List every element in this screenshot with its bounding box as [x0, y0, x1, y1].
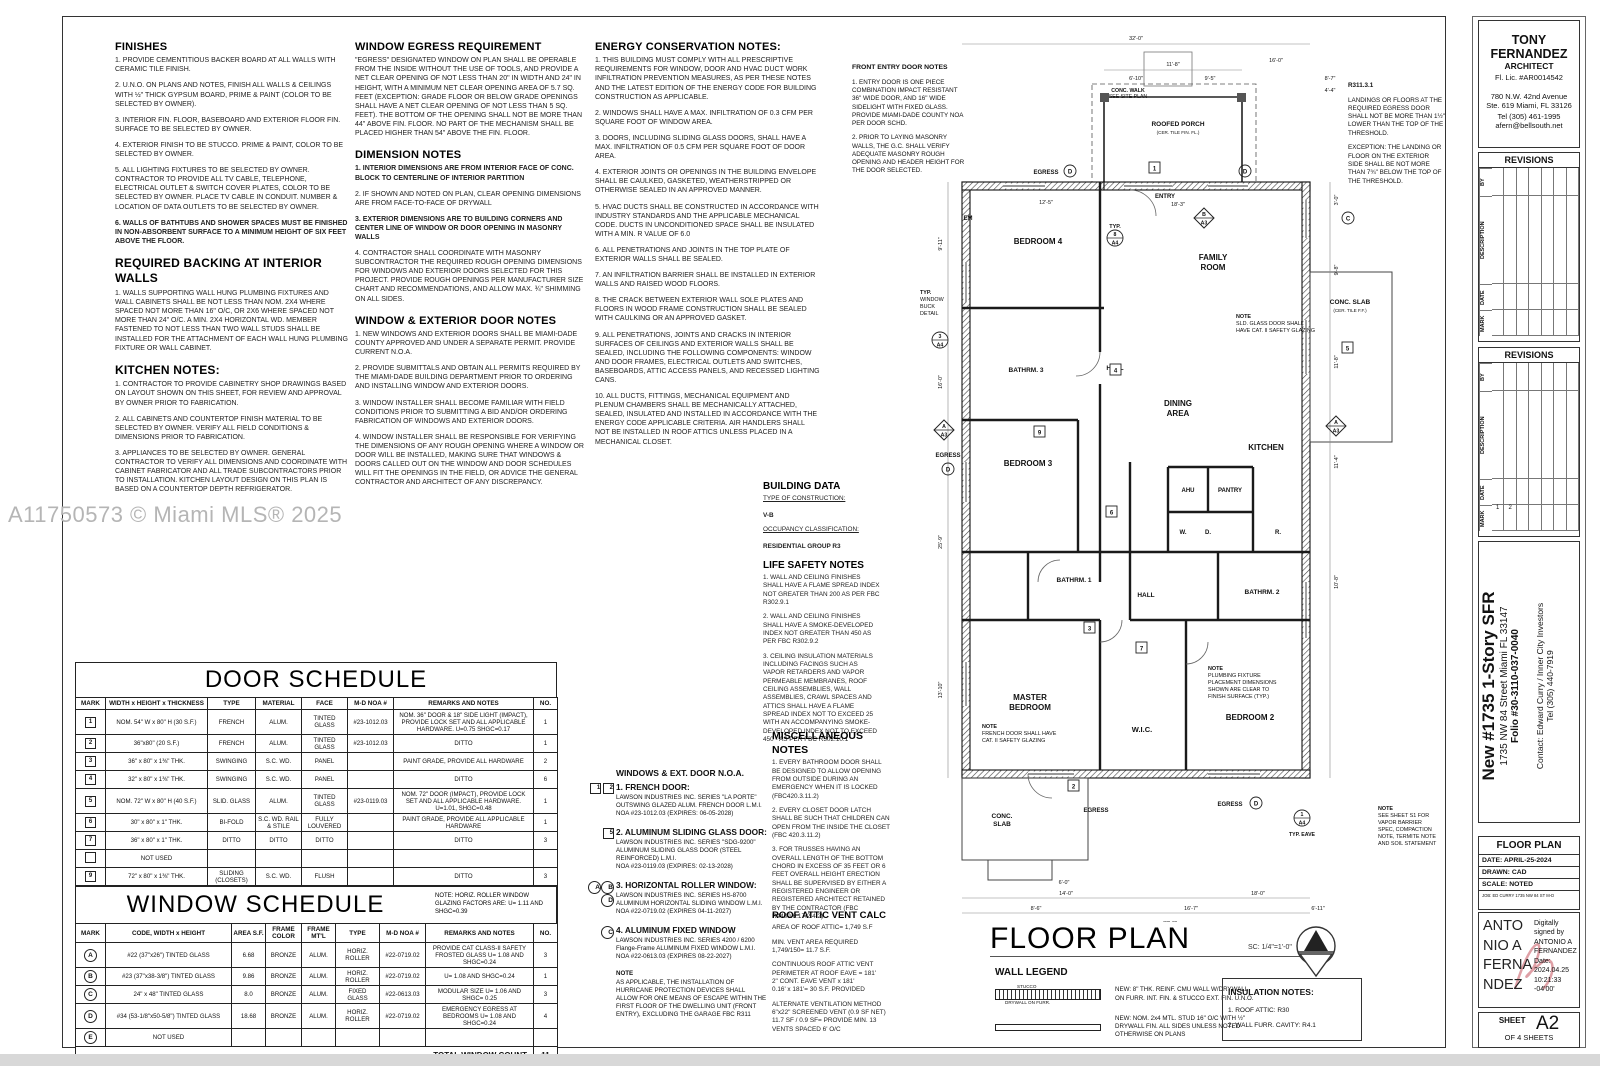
- door-schedule-title: DOOR SCHEDULE: [75, 662, 557, 697]
- table-cell: DITTO: [394, 832, 534, 850]
- table-cell: BRONZE: [266, 968, 302, 986]
- table-cell: HORIZ. ROLLER: [336, 1004, 380, 1029]
- revision-cell: [1542, 363, 1554, 391]
- backing-title: REQUIRED BACKING AT INTERIOR WALLS: [115, 256, 348, 287]
- architect-address2: Ste. 619 Miami, FL 33126: [1479, 101, 1579, 110]
- svg-text:8'-7": 8'-7": [1325, 76, 1336, 82]
- revisions-date-label: DATE: [1479, 479, 1492, 505]
- table-cell: 6: [534, 771, 558, 789]
- revision-cell: [1554, 196, 1566, 284]
- project-folio: Folio #30-3110-037-0040: [1510, 546, 1521, 823]
- table-cell: 6: [76, 814, 106, 832]
- note-paragraph: 1. NEW WINDOWS AND EXTERIOR DOORS SHALL …: [355, 330, 588, 357]
- notes-column-1: FINISHES 1. PROVIDE CEMENTITIOUS BACKER …: [115, 30, 348, 501]
- revisions-row-description: DESCRIPTION: [1479, 391, 1579, 479]
- revisions-date-label: DATE: [1479, 284, 1492, 310]
- noa-entry-roller: ABD 3. HORIZONTAL ROLLER WINDOW: LAWSON …: [590, 880, 768, 916]
- drawing-sheet: A11750573 © Miami MLS® 2025 FINISHES 1. …: [0, 0, 1600, 1054]
- energy-notes-items: 1. THIS BUILDING MUST COMPLY WITH ALL PR…: [595, 56, 820, 446]
- table-cell: U= 1.08 AND SHGC=0.24: [426, 968, 534, 986]
- revision-cell: [1542, 391, 1554, 479]
- revision-cell: [1529, 505, 1541, 531]
- window-schedule: WINDOW SCHEDULE NOTE: HORIZ. ROLLER WIND…: [75, 886, 557, 1054]
- revisions-row-description: DESCRIPTION: [1479, 196, 1579, 284]
- svg-text:18'-3": 18'-3": [1171, 202, 1185, 208]
- table-cell: BRONZE: [266, 943, 302, 968]
- sheet-label: SHEET: [1499, 1016, 1526, 1025]
- note-paragraph: 4. CONTRACTOR SHALL COORDINATE WITH MASO…: [355, 249, 588, 304]
- occupancy-value: RESIDENTIAL GROUP R3: [763, 543, 841, 550]
- window-schedule-table: MARKCODE, WIDTH x HEIGHTAREA S.F.FRAME C…: [75, 923, 558, 1054]
- table-cell: DITTO: [302, 832, 348, 850]
- note-paragraph: 2. PROVIDE SUBMITTALS AND OBTAIN ALL PER…: [355, 364, 588, 391]
- vent-calc-title: ROOF ATTIC VENT CALC: [772, 910, 890, 922]
- revisions-row-by: BY: [1479, 363, 1579, 391]
- svg-text:10'-8": 10'-8": [1334, 575, 1340, 589]
- svg-text:NOTE: NOTE: [982, 724, 997, 730]
- table-cell: #22 (37"x26") TINTED GLASS: [106, 943, 232, 968]
- noa-entry-fixed: C 4. ALUMINUM FIXED WINDOW LAWSON INDUST…: [590, 925, 768, 961]
- svg-text:25'-9": 25'-9": [938, 535, 944, 549]
- insulation-notes: INSULATION NOTES: 1. ROOF ATTIC: R302. W…: [1222, 978, 1362, 1041]
- svg-text:CONC.: CONC.: [992, 813, 1013, 820]
- insulation-notes-items: 1. ROOF ATTIC: R302. WALL FURR. CAVITY: …: [1228, 1007, 1356, 1031]
- revision-cell: [1504, 479, 1516, 505]
- note-paragraph: 4. EXTERIOR FINISH TO BE STUCCO. PRIME &…: [115, 141, 348, 159]
- mls-watermark: A11750573 © Miami MLS® 2025: [8, 502, 342, 528]
- table-cell: ALUM.: [302, 986, 336, 1004]
- insulation-notes-title: INSULATION NOTES:: [1228, 987, 1314, 997]
- revisions-description-label: DESCRIPTION: [1479, 196, 1492, 284]
- table-cell: SLIDING (CLOSETS): [208, 868, 256, 886]
- svg-text:16'-0": 16'-0": [1269, 58, 1283, 64]
- svg-text:EGRESS: EGRESS: [1083, 808, 1108, 814]
- table-cell: 1: [534, 735, 558, 753]
- svg-text:AND SOIL STATEMENT: AND SOIL STATEMENT: [1378, 841, 1437, 847]
- table-cell: 9.86: [232, 968, 266, 986]
- svg-text:DETAIL: DETAIL: [920, 311, 938, 317]
- table-cell: 36"x80" (20 S.F.): [106, 735, 208, 753]
- svg-text:6'-0": 6'-0": [1059, 880, 1070, 886]
- column-header: NO.: [534, 698, 558, 710]
- table-cell: #23 (37"x38-3/8") TINTED GLASS: [106, 968, 232, 986]
- table-cell: PANEL: [302, 753, 348, 771]
- table-cell: NOM. 54" W x 80" H (30 S.F.): [106, 710, 208, 735]
- r311-note-items: LANDINGS OR FLOORS AT THE REQUIRED EGRES…: [1348, 97, 1445, 186]
- revision-cell: [1517, 505, 1529, 531]
- svg-text:SLAB: SLAB: [993, 821, 1011, 828]
- table-row: 1NOM. 54" W x 80" H (30 S.F.)FRENCHALUM.…: [76, 710, 558, 735]
- table-cell: ALUM.: [256, 710, 302, 735]
- note-paragraph: 2. WINDOWS SHALL HAVE A MAX. INFILTRATIO…: [595, 109, 820, 127]
- sheet-info-box: FLOOR PLAN DATE: APRIL-25-2024 DRAWN: CA…: [1478, 836, 1580, 910]
- revision-cell: [1542, 479, 1554, 505]
- table-cell: SWINGING: [208, 753, 256, 771]
- table-cell: 1: [76, 710, 106, 735]
- dimension-notes-items: 1. INTERIOR DIMENSIONS ARE FROM INTERIOR…: [355, 164, 588, 303]
- table-cell: [208, 850, 256, 868]
- revision-cell: [1529, 168, 1541, 196]
- table-row: 630" x 80" x 1" THK.BI-FOLDS.C. WD. RAIL…: [76, 814, 558, 832]
- revision-cell: [1567, 284, 1579, 310]
- svg-text:D: D: [1068, 170, 1073, 176]
- revision-cell: [1492, 310, 1504, 336]
- legend-drywall-label: DRYWALL ON FURR.: [1005, 1000, 1115, 1005]
- column-header: TYPE: [336, 924, 380, 943]
- revisions-box-1: REVISIONS BY DESCRIPTION DATE MARK: [1478, 152, 1580, 342]
- revisions-row-mark: MARK: [1479, 310, 1579, 336]
- windoor-notes-items: 1. NEW WINDOWS AND EXTERIOR DOORS SHALL …: [355, 330, 588, 487]
- table-cell: TINTED GLASS: [302, 710, 348, 735]
- revisions-mark-label: MARK: [1479, 505, 1492, 531]
- window-schedule-title: WINDOW SCHEDULE: [76, 891, 435, 919]
- notes-column-2: WINDOW EGRESS REQUIREMENT "EGRESS" DESIG…: [355, 30, 588, 494]
- table-cell: BRONZE: [266, 1004, 302, 1029]
- svg-text:A4: A4: [1299, 821, 1306, 827]
- table-row: 336" x 80" x 1⅜" THK.SWINGINGS.C. WD.PAN…: [76, 753, 558, 771]
- revision-cell: [1504, 284, 1516, 310]
- svg-text:4'-4": 4'-4": [1325, 88, 1336, 94]
- svg-text:EGRESS: EGRESS: [1033, 170, 1058, 176]
- egress-markers: EGRESS D D EGRESS D EGRESS EGRESS D C: [935, 165, 1354, 814]
- svg-text:ROOFED PORCH: ROOFED PORCH: [1151, 121, 1204, 128]
- dimension-labels: 32'-0" 11'-8" 6'-10" 9'-5" 16'-0" 8'-7" …: [938, 36, 1340, 922]
- table-cell: 8.0: [232, 986, 266, 1004]
- note-paragraph: 1. WALL AND CEILING FINISHES SHALL HAVE …: [763, 574, 881, 607]
- svg-text:D: D: [1254, 802, 1259, 808]
- table-cell: [426, 1029, 534, 1047]
- occupancy-label: OCCUPANCY CLASSIFICATION:: [763, 526, 859, 533]
- table-cell: [232, 1029, 266, 1047]
- table-cell: 3: [534, 986, 558, 1004]
- svg-text:NOTE: NOTE: [1378, 806, 1393, 812]
- project-phone: Tel (305) 440-7919: [1545, 546, 1555, 823]
- revisions-row-mark: MARK 1 2: [1479, 505, 1579, 531]
- note-paragraph: 4. EXTERIOR JOINTS OR OPENINGS IN THE BU…: [595, 168, 820, 195]
- revision-cell: [1517, 284, 1529, 310]
- table-cell: ALUM.: [256, 789, 302, 814]
- column-header: CODE, WIDTH x HEIGHT: [106, 924, 232, 943]
- table-cell: TINTED GLASS: [302, 735, 348, 753]
- table-cell: 30" x 80" x 1" THK.: [106, 814, 208, 832]
- table-cell: E: [76, 1029, 106, 1047]
- table-cell: NOT USED: [106, 850, 208, 868]
- sheet-date: DATE: APRIL-25-2024: [1479, 855, 1579, 867]
- table-cell: MODULAR SIZE U= 1.06 AND SHGC= 0.25: [426, 986, 534, 1004]
- svg-text:12'-5": 12'-5": [1039, 200, 1053, 206]
- window-mark-A: A: [588, 881, 601, 894]
- revision-cell: [1554, 310, 1566, 336]
- revision-cell: [1529, 363, 1541, 391]
- svg-text:16'-0": 16'-0": [938, 375, 944, 389]
- svg-text:AREA: AREA: [1167, 409, 1190, 418]
- revisions-header: REVISIONS: [1479, 348, 1579, 363]
- plan-scale: SC: 1/4"=1'-0": [1248, 944, 1292, 951]
- revision-cell: [1542, 505, 1554, 531]
- revisions-by-label: BY: [1479, 363, 1492, 391]
- legend-cmu-graphic: STUCCO DRYWALL ON FURR.: [995, 984, 1115, 1005]
- table-row: B#23 (37"x38-3/8") TINTED GLASS9.86BRONZ…: [76, 968, 558, 986]
- project-contact: Contact: Edward Curry / Inner City Inves…: [1535, 546, 1545, 823]
- table-cell: PROVIDE CAT CLASS-II SAFETY FROSTED GLAS…: [426, 943, 534, 968]
- table-cell: [302, 850, 348, 868]
- conc-walk-outline: [1144, 52, 1192, 86]
- svg-text:18'-0": 18'-0": [1251, 891, 1265, 897]
- plan-caption: FLOOR PLAN: [990, 922, 1190, 956]
- table-cell: 36" x 80" x 1⅜" THK.: [106, 753, 208, 771]
- note-paragraph: 1. WALLS SUPPORTING WALL HUNG PLUMBING F…: [115, 289, 348, 353]
- svg-text:EGRESS: EGRESS: [1217, 802, 1242, 808]
- note-paragraph: EXCEPTION: THE LANDING OR FLOOR ON THE E…: [1348, 144, 1445, 185]
- sheet-job: JOB: ED CURRY 1735 NW 84 ST M-D: [1479, 891, 1579, 900]
- svg-text:TYP.: TYP.: [1109, 224, 1121, 230]
- table-cell: 3: [534, 832, 558, 850]
- svg-text:3: 3: [939, 334, 942, 340]
- building-data-block: BUILDING DATA TYPE OF CONSTRUCTION: V-B …: [763, 472, 881, 750]
- revision-cell: [1517, 391, 1529, 479]
- note-paragraph: ALTERNATE VENTILATION METHOD 6"x22" SCRE…: [772, 1001, 890, 1034]
- backing-items: 1. WALLS SUPPORTING WALL HUNG PLUMBING F…: [115, 289, 348, 353]
- table-cell: [348, 814, 394, 832]
- revision-cell: [1492, 391, 1504, 479]
- sheet-number-box: SHEET A2 OF 4 SHEETS: [1478, 1012, 1580, 1048]
- column-header: REMARKS AND NOTES: [426, 924, 534, 943]
- revision-cell: [1492, 363, 1504, 391]
- noa-note-title: NOTE: [616, 970, 633, 977]
- svg-text:SHOWN ARE CLEAR TO: SHOWN ARE CLEAR TO: [1208, 687, 1269, 693]
- svg-text:B: B: [1202, 212, 1206, 218]
- north-arrow-icon: [1290, 924, 1342, 980]
- table-cell: SLID. GLASS: [208, 789, 256, 814]
- table-cell: #22-0613.03: [380, 986, 426, 1004]
- table-cell: 2: [534, 753, 558, 771]
- table-cell: DITTO: [256, 832, 302, 850]
- column-header: TYPE: [208, 698, 256, 710]
- table-cell: [348, 832, 394, 850]
- table-cell: NOM. 72" W x 80" H (40 S.F.): [106, 789, 208, 814]
- window-mark-D: D: [601, 894, 614, 907]
- table-cell: FLUSH: [302, 868, 348, 886]
- svg-text:A3: A3: [1201, 221, 1208, 227]
- noa-entry-title: 4. ALUMINUM FIXED WINDOW: [616, 925, 768, 936]
- svg-text:HAVE CAT. II SAFETY GLAZING: HAVE CAT. II SAFETY GLAZING: [1236, 328, 1315, 334]
- table-cell: 18.68: [232, 1004, 266, 1029]
- porch-column: [1237, 93, 1246, 102]
- plan-notes: NOTE SLD. GLASS DOOR SHALL HAVE CAT. II …: [920, 290, 1437, 847]
- svg-text:EM: EM: [964, 216, 973, 222]
- table-cell: 72" x 80" x 1⅜" THK.: [106, 868, 208, 886]
- svg-text:SLD. GLASS DOOR SHALL: SLD. GLASS DOOR SHALL: [1236, 321, 1304, 327]
- revisions-header: REVISIONS: [1479, 153, 1579, 168]
- noa-entry-sgd: 5 2. ALUMINUM SLIDING GLASS DOOR: LAWSON…: [590, 827, 768, 871]
- table-cell: HORIZ. ROLLER: [336, 943, 380, 968]
- note-paragraph: "EGRESS" DESIGNATED WINDOW ON PLAN SHALL…: [355, 56, 588, 138]
- svg-text:KITCHEN: KITCHEN: [1248, 443, 1284, 452]
- svg-text:SEE SITE PLAN: SEE SITE PLAN: [1109, 94, 1148, 100]
- svg-text:D: D: [1243, 170, 1248, 176]
- revision-cell: [1542, 310, 1554, 336]
- svg-text:EGRESS: EGRESS: [935, 453, 960, 459]
- revision-mark-1: 1: [1492, 505, 1504, 531]
- architect-license: Fl. Lic. #AR0014542: [1479, 73, 1579, 82]
- column-header: AREA S.F.: [232, 924, 266, 943]
- svg-text:BATHRM. 2: BATHRM. 2: [1245, 589, 1280, 596]
- table-cell: 7: [76, 832, 106, 850]
- svg-text:A3: A3: [1333, 429, 1340, 435]
- svg-text:TYP.: TYP.: [920, 290, 932, 296]
- vent-calc-block: ROOF ATTIC VENT CALC AREA OF ROOF ATTIC=…: [772, 902, 890, 1040]
- svg-text:BEDROOM: BEDROOM: [1009, 703, 1051, 712]
- table-cell: 4: [76, 771, 106, 789]
- table-cell: 1: [534, 968, 558, 986]
- note-paragraph: AREA OF ROOF ATTIC= 1,749 S.F: [772, 924, 890, 932]
- column-header: FRAME COLOR: [266, 924, 302, 943]
- architect-email: afern@bellsouth.net: [1479, 121, 1579, 130]
- svg-text:ENTRY: ENTRY: [1155, 194, 1175, 200]
- revision-cell: [1542, 284, 1554, 310]
- noa-entry-title: 1. FRENCH DOOR:: [616, 782, 768, 793]
- table-cell: #34 (53-1/8"x50-5/8") TINTED GLASS: [106, 1004, 232, 1029]
- table-cell: ALUM.: [256, 735, 302, 753]
- revision-cell: [1529, 310, 1541, 336]
- note-paragraph: 5. HVAC DUCTS SHALL BE CONSTRUCTED IN AC…: [595, 203, 820, 239]
- column-header: MARK: [76, 924, 106, 943]
- table-cell: [348, 868, 394, 886]
- noa-title: WINDOWS & EXT. DOOR N.O.A.: [616, 768, 768, 779]
- svg-text:CAT. II SAFETY GLAZING: CAT. II SAFETY GLAZING: [982, 738, 1045, 744]
- sheet-of: OF 4 SHEETS: [1479, 1033, 1579, 1042]
- svg-text:R.: R.: [1275, 530, 1281, 536]
- table-cell: 4: [534, 1004, 558, 1029]
- table-cell: ALUM.: [302, 943, 336, 968]
- note-paragraph: 8. THE CRACK BETWEEN EXTERIOR WALL SOLE …: [595, 296, 820, 323]
- svg-text:14'-0": 14'-0": [1059, 891, 1073, 897]
- column-header: MATERIAL: [256, 698, 302, 710]
- project-title: New #1735 1-Story SFR: [1479, 546, 1499, 823]
- svg-text:NOTE: NOTE: [1208, 666, 1223, 672]
- revision-cell: [1504, 391, 1516, 479]
- svg-text:BUCK: BUCK: [920, 304, 935, 310]
- table-cell: FULLY LOUVERED: [302, 814, 348, 832]
- svg-text:11'-8": 11'-8": [1334, 355, 1340, 368]
- project-box: New #1735 1-Story SFR 1735 NW 84 Street …: [1478, 541, 1580, 823]
- table-cell: 3: [76, 753, 106, 771]
- table-row: D#34 (53-1/8"x50-5/8") TINTED GLASS18.68…: [76, 1004, 558, 1029]
- revision-cell: [1529, 479, 1541, 505]
- table-cell: C: [76, 986, 106, 1004]
- note-paragraph: 7. AN INFILTRATION BARRIER SHALL BE INST…: [595, 271, 820, 289]
- table-cell: S.C. WD.: [256, 771, 302, 789]
- table-cell: NOT USED: [106, 1029, 232, 1047]
- svg-text:BEDROOM 2: BEDROOM 2: [1226, 713, 1275, 722]
- table-cell: [76, 850, 106, 868]
- svg-text:1: 1: [1301, 812, 1304, 818]
- finishes-items: 1. PROVIDE CEMENTITIOUS BACKER BOARD AT …: [115, 56, 348, 246]
- svg-text:W.: W.: [1180, 530, 1187, 536]
- architect-name: TONY FERNANDEZ: [1479, 33, 1579, 61]
- svg-text:FAMILY: FAMILY: [1199, 253, 1228, 262]
- noa-entry-lines: LAWSON INDUSTRIES INC. SERIES "LA PORTE"…: [616, 794, 768, 818]
- table-row: 236"x80" (20 S.F.)FRENCHALUM.TINTED GLAS…: [76, 735, 558, 753]
- revision-cell: [1567, 310, 1579, 336]
- svg-text:A: A: [942, 424, 946, 430]
- table-cell: 1: [534, 814, 558, 832]
- svg-text:NOTE, TERMITE NOTE: NOTE, TERMITE NOTE: [1378, 834, 1436, 840]
- revision-mark-2: 2: [1504, 505, 1516, 531]
- note-paragraph: 1. ROOF ATTIC: R30: [1228, 1007, 1356, 1016]
- table-cell: 1: [534, 789, 558, 814]
- note-paragraph: LANDINGS OR FLOORS AT THE REQUIRED EGRES…: [1348, 97, 1445, 138]
- revision-cell: [1542, 196, 1554, 284]
- kitchen-notes-items: 1. CONTRACTOR TO PROVIDE CABINETRY SHOP …: [115, 380, 348, 494]
- porch-walls: [1104, 97, 1242, 182]
- column-header: M-D NOA #: [348, 698, 394, 710]
- vent-calc-items: AREA OF ROOF ATTIC= 1,749 S.FMIN. VENT A…: [772, 924, 890, 1034]
- column-header: REMARKS AND NOTES: [394, 698, 534, 710]
- table-cell: #23-0119.03: [348, 789, 394, 814]
- svg-text:A4: A4: [1112, 241, 1119, 247]
- revision-cell: [1492, 168, 1504, 196]
- table-cell: 3: [534, 943, 558, 968]
- table-cell: #22-0719.02: [380, 1004, 426, 1029]
- note-paragraph: CONTINUOUS ROOF ATTIC VENT PERIMETER AT …: [772, 961, 890, 994]
- column-header: NO.: [534, 924, 558, 943]
- revision-cell: [1554, 284, 1566, 310]
- revision-cell: [1517, 479, 1529, 505]
- revision-cell: [1554, 168, 1566, 196]
- table-cell: S.C. WD.: [256, 868, 302, 886]
- table-cell: 3: [534, 868, 558, 886]
- svg-text:8'-6": 8'-6": [1031, 906, 1042, 912]
- building-data-title: BUILDING DATA: [763, 480, 881, 493]
- r311-note: R311.3.1 LANDINGS OR FLOORS AT THE REQUI…: [1348, 82, 1445, 192]
- table-row: 432" x 80" x 1⅜" THK.SWINGINGS.C. WD.PAN…: [76, 771, 558, 789]
- table-cell: [256, 850, 302, 868]
- stud-wall-swatch: [995, 1024, 1101, 1031]
- note-paragraph: 1. CONTRACTOR TO PROVIDE CABINETRY SHOP …: [115, 380, 348, 407]
- note-paragraph: 1. PROVIDE CEMENTITIOUS BACKER BOARD AT …: [115, 56, 348, 74]
- finishes-title: FINISHES: [115, 40, 348, 54]
- revision-cell: [1567, 363, 1579, 391]
- svg-text:ROOM: ROOM: [1201, 263, 1226, 272]
- table-cell: [266, 1029, 302, 1047]
- table-cell: FRENCH: [208, 710, 256, 735]
- revision-cell: [1542, 168, 1554, 196]
- table-cell: DITTO: [394, 735, 534, 753]
- svg-text:FRENCH DOOR SHALL HAVE: FRENCH DOOR SHALL HAVE: [982, 731, 1057, 737]
- revision-cell: [1567, 391, 1579, 479]
- table-cell: FRENCH: [208, 735, 256, 753]
- note-paragraph: MIN. VENT AREA REQUIRED 1,749/150= 11.7 …: [772, 939, 890, 956]
- table-cell: NOM. 36" DOOR & 18" SIDE LIGHT (IMPACT),…: [394, 710, 534, 735]
- table-cell: 5: [76, 789, 106, 814]
- svg-text:A3: A3: [941, 433, 948, 439]
- svg-text:11'-4": 11'-4": [1334, 455, 1340, 468]
- egress-req-title: WINDOW EGRESS REQUIREMENT: [355, 40, 588, 54]
- door-mark-2: 2: [603, 783, 614, 794]
- table-cell: ALUM.: [302, 1004, 336, 1029]
- revision-cell: [1529, 391, 1541, 479]
- kitchen-notes-title: KITCHEN NOTES:: [115, 363, 348, 379]
- egress-req-items: "EGRESS" DESIGNATED WINDOW ON PLAN SHALL…: [355, 56, 588, 138]
- wall-legend-title: WALL LEGEND: [995, 967, 1068, 978]
- dimension-lines: [948, 44, 1330, 922]
- revision-cell: [1492, 479, 1504, 505]
- svg-text:9'-8": 9'-8": [1334, 265, 1340, 276]
- table-cell: [348, 771, 394, 789]
- sheet-drawn: DRAWN: CAD: [1479, 867, 1579, 879]
- table-cell: A: [76, 943, 106, 968]
